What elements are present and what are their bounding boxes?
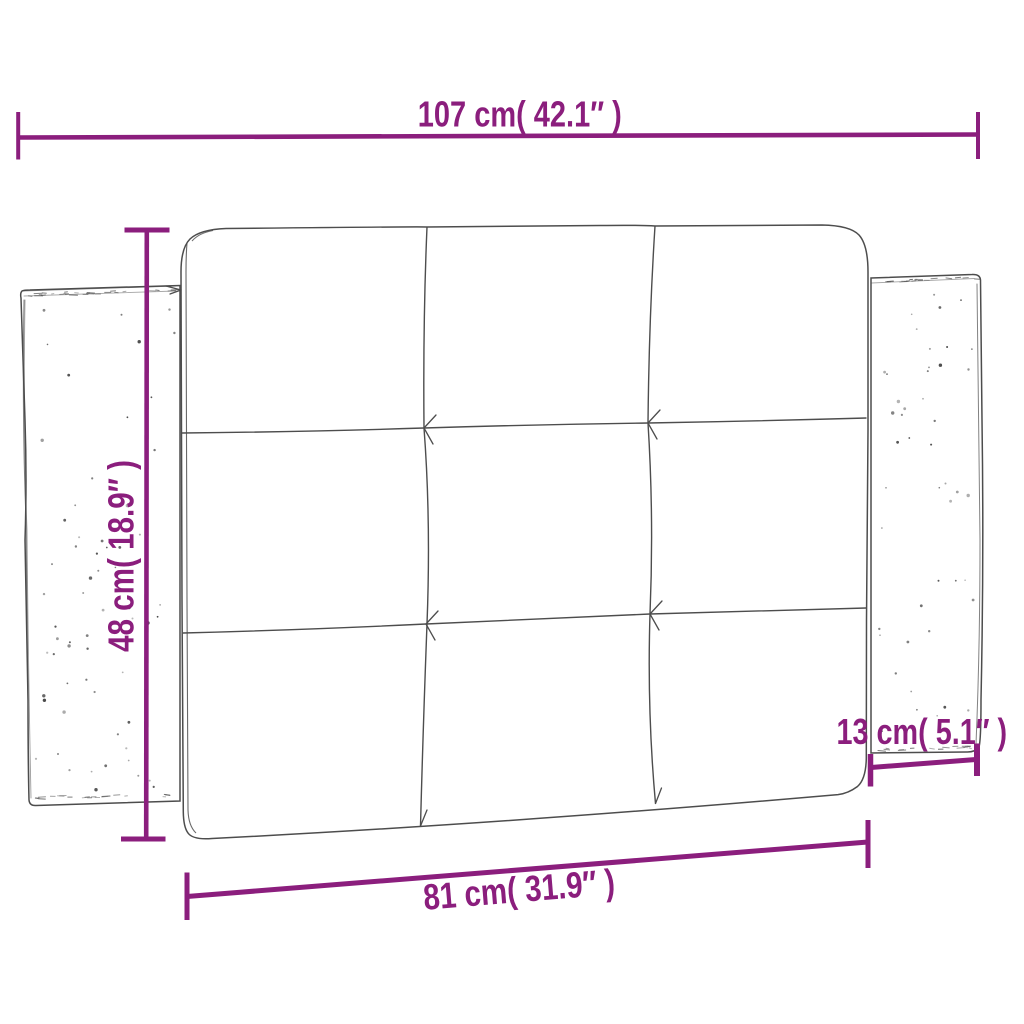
svg-text:13 cm( 5.1″ ): 13 cm( 5.1″ ) bbox=[837, 711, 1008, 752]
svg-text:107 cm( 42.1″ ): 107 cm( 42.1″ ) bbox=[418, 94, 622, 135]
svg-text:48 cm( 18.9″ ): 48 cm( 18.9″ ) bbox=[101, 460, 142, 652]
